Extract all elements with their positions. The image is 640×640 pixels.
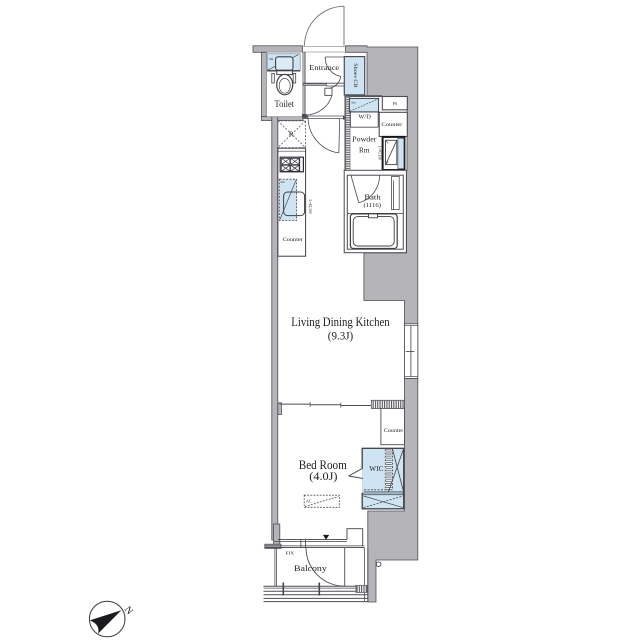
svg-text:(1116): (1116)	[364, 202, 382, 209]
svg-text:Living Dining Kitchen: Living Dining Kitchen	[291, 314, 390, 329]
svg-text:Counter: Counter	[382, 122, 403, 128]
svg-text:Sin: Sin	[351, 101, 356, 105]
svg-text:Counter: Counter	[384, 428, 404, 434]
svg-text:WIC: WIC	[369, 464, 383, 473]
svg-text:R: R	[289, 129, 294, 138]
svg-text:(4.0J): (4.0J)	[309, 469, 337, 483]
svg-text:(9.3J): (9.3J)	[328, 329, 353, 343]
svg-text:Sin: Sin	[269, 57, 274, 61]
svg-text:Balcony: Balcony	[294, 564, 328, 573]
svg-text:N: N	[122, 604, 135, 616]
svg-text:Shoes CB: Shoes CB	[352, 63, 358, 88]
svg-text:Toilet: Toilet	[275, 99, 295, 109]
svg-text:Counter: Counter	[283, 237, 304, 243]
svg-text:W/D: W/D	[358, 114, 371, 121]
svg-text:Entrance: Entrance	[309, 64, 339, 72]
svg-text:PS: PS	[393, 101, 397, 106]
svg-text:Bath: Bath	[364, 193, 381, 202]
svg-text:FIX: FIX	[286, 550, 295, 555]
svg-text:L=#2,300: L=#2,300	[307, 199, 312, 213]
svg-text:AC: AC	[306, 499, 312, 504]
svg-text:Powder: Powder	[352, 135, 377, 144]
svg-text:L=#2,190: L=#2,190	[376, 146, 381, 160]
svg-text:Rm: Rm	[359, 145, 370, 154]
svg-text:Sin: Sin	[280, 180, 285, 184]
